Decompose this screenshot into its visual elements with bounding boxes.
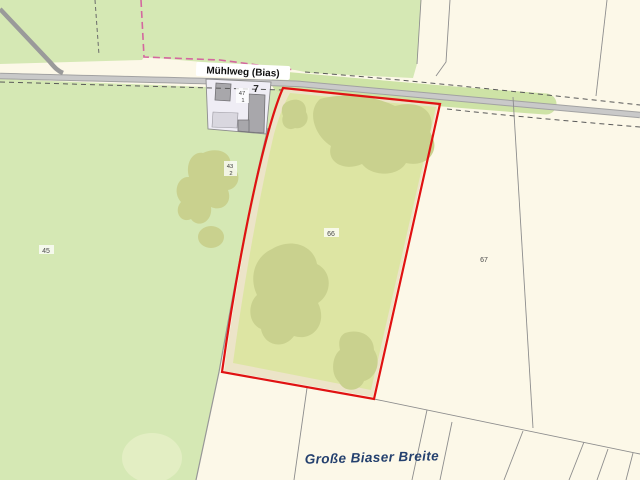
cadastral-map-canvas[interactable]: 45 66 67 47 1 43 2 7 Mühlweg (Bias) Groß… [0,0,640,480]
parcel-label-47-denominator: 1 [241,98,244,104]
parcel-label-45: 45 [42,248,50,255]
map-viewport[interactable]: 45 66 67 47 1 43 2 7 Mühlweg (Bias) Groß… [0,0,640,480]
building-south [238,120,249,132]
annex-building [212,112,238,128]
farmstead [206,79,271,134]
building-east [248,94,265,133]
parcel-label-43-numerator: 43 [227,164,233,170]
parcel-label-67: 67 [480,257,488,264]
house-number-label: 7 [253,84,259,95]
parcel-label-47-numerator: 47 [239,91,245,97]
parcel-label-66: 66 [327,231,335,238]
scrub-blotch-west-small [198,226,224,248]
parcel-label-43-denominator: 2 [229,171,232,177]
building-north [215,83,231,101]
scrub-blotch-small [282,100,308,129]
